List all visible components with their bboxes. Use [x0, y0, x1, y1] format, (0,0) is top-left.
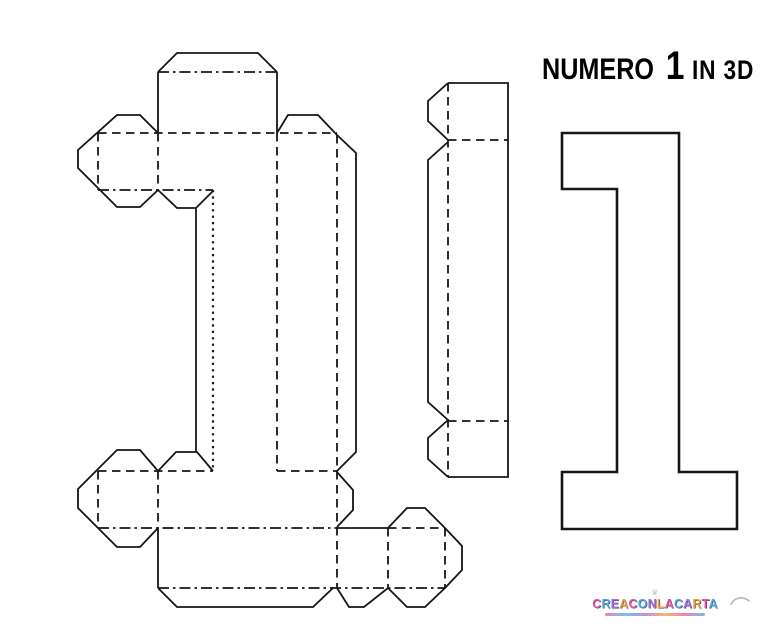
title-suffix: IN 3D	[692, 55, 754, 86]
net-bottom-small-glue-tab	[337, 588, 388, 607]
number-outline-piece	[562, 133, 737, 529]
strip-top-glue-tab	[428, 83, 448, 140]
net-flag-side-wall-flap	[78, 115, 158, 207]
side-strip-piece	[428, 83, 508, 477]
title-word: NUMERO	[542, 50, 654, 89]
watermark-logo: ♛ CREACONLACARTA	[586, 589, 724, 616]
page-title: NUMERO 1 IN 3D	[542, 46, 754, 89]
net-corner-wall-flap	[388, 508, 462, 607]
net-base-side-wall-flap	[78, 450, 158, 547]
net-bottom-glue-tab	[158, 588, 333, 607]
net-main-piece	[78, 53, 462, 607]
papercraft-page: NUMERO 1 IN 3D ♛ CREACONLACARTA	[0, 0, 778, 631]
net-right-wall-top-glue-tab	[277, 115, 337, 135]
logo-text: CREACONLACARTA	[586, 598, 724, 611]
title-number: 1	[666, 46, 685, 86]
number-1-outline	[562, 133, 737, 529]
net-right-wall-long-glue-tab	[337, 135, 356, 471]
strip-bottom-glue-tab	[428, 420, 448, 477]
logo-crown-icon: ♛	[586, 589, 724, 597]
net-base-right-glue-tab	[337, 472, 353, 527]
net-top-glue-tab	[158, 53, 277, 72]
strip-outline	[448, 83, 508, 477]
strip-middle-glue-tab	[428, 142, 448, 420]
net-under-flag-glue-tab	[158, 190, 213, 208]
logo-tagline	[605, 613, 705, 616]
net-base-top-glue-tab	[158, 452, 213, 471]
papercraft-net-diagram	[0, 0, 778, 631]
stray-mark	[731, 598, 749, 604]
